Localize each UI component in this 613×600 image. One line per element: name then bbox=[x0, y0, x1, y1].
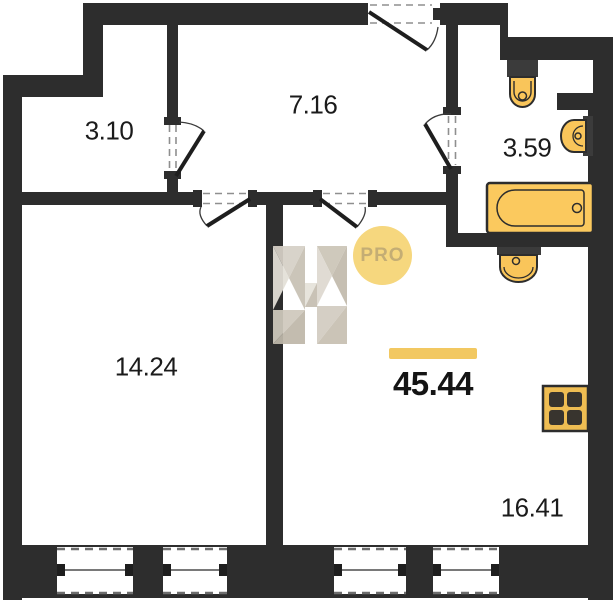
washbasin-icon bbox=[497, 247, 541, 282]
floor-plan: 3.10 7.16 3.59 14.24 16.41 45.44 PRO bbox=[0, 0, 613, 600]
sink-icon bbox=[561, 116, 593, 156]
bathroom-door-icon bbox=[425, 114, 456, 169]
window-icon bbox=[163, 547, 227, 594]
room-area-label-hallway: 7.16 bbox=[289, 90, 338, 121]
toilet-icon bbox=[507, 60, 538, 107]
room-area-label-bedroom: 14.24 bbox=[115, 352, 178, 383]
window-icon bbox=[334, 547, 406, 594]
room-area-label-living-kitchen: 16.41 bbox=[501, 493, 564, 524]
total-area-label: 45.44 bbox=[393, 365, 473, 403]
bathtub-icon bbox=[487, 183, 593, 233]
bedroom-door-icon bbox=[200, 194, 250, 227]
pro-badge: PRO bbox=[353, 226, 412, 285]
window-icon bbox=[433, 547, 499, 594]
stove-icon bbox=[543, 386, 593, 431]
living-door-icon bbox=[320, 194, 367, 228]
total-area-accent-bar bbox=[389, 348, 477, 359]
window-icon bbox=[57, 547, 133, 594]
room-area-label-bathroom: 3.59 bbox=[503, 133, 552, 164]
entrance-door-icon bbox=[369, 5, 438, 50]
watermark-logo-icon bbox=[273, 246, 347, 344]
room-area-label-storage: 3.10 bbox=[85, 116, 134, 147]
storage-door-icon bbox=[170, 122, 205, 176]
